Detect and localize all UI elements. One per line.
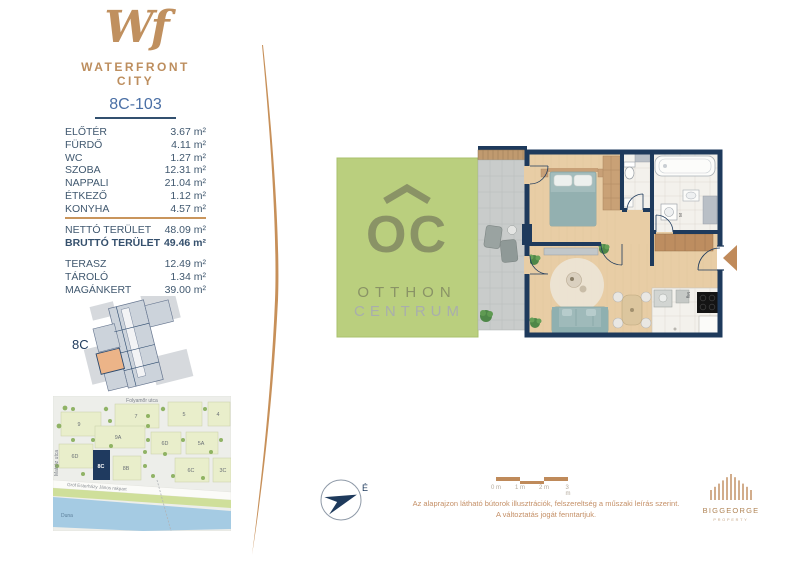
scale-bar: 0 m 1 m 2 m 3 m	[496, 477, 572, 493]
room-row: SZOBA12.31 m²	[65, 164, 206, 177]
floor-plan: OC OTTHON CENTRUM	[335, 146, 737, 346]
svg-text:6C: 6C	[188, 468, 195, 474]
room-area: 21.04 m²	[165, 177, 206, 189]
biggeorge-logo: BIGGEORGE PROPERTY	[692, 466, 770, 526]
lounge-chair	[484, 225, 503, 249]
compass: É	[317, 477, 371, 523]
room-name: FÜRDŐ	[65, 139, 102, 151]
tan-separator	[65, 217, 206, 219]
svg-text:3C: 3C	[220, 468, 227, 474]
shaft	[635, 154, 650, 162]
svg-text:5A: 5A	[198, 441, 205, 447]
extra-name: TERASZ	[65, 258, 106, 270]
room-name: NAPPALI	[65, 177, 109, 189]
scale-tick: 2 m	[539, 485, 549, 491]
pillow	[554, 175, 572, 186]
washer-label: M	[678, 213, 684, 217]
svg-text:6D: 6D	[72, 454, 79, 460]
pillow	[574, 175, 592, 186]
tv-sideboard	[544, 248, 598, 255]
room-area: 4.11 m²	[171, 139, 206, 151]
room-list: ELŐTÉR3.67 m² FÜRDŐ4.11 m² WC1.27 m² SZO…	[65, 126, 206, 216]
extra-row: TERASZ12.49 m²	[65, 258, 206, 271]
dishwasher-label: Mg	[686, 292, 691, 299]
room-row: FÜRDŐ4.11 m²	[65, 139, 206, 152]
north-arrow-icon	[324, 489, 360, 515]
room-name: KONYHA	[65, 203, 109, 215]
total-name: BRUTTÓ TERÜLET	[65, 237, 160, 249]
svg-text:5: 5	[183, 412, 186, 418]
headboard	[548, 168, 598, 172]
stove	[697, 292, 718, 313]
wf-monogram-logo: Wf	[63, 2, 208, 54]
svg-text:OC: OC	[366, 206, 448, 264]
coffee-table	[567, 273, 582, 288]
extra-area: 1.34 m²	[170, 271, 206, 283]
total-area: 48.09 m²	[165, 224, 206, 236]
sofa	[552, 307, 608, 334]
svg-text:6D: 6D	[162, 441, 169, 447]
otthon-centrum-watermark: OC OTTHON CENTRUM	[354, 188, 464, 320]
svg-text:8C: 8C	[98, 464, 105, 470]
developer-subtitle: PROPERTY	[713, 518, 748, 522]
brand-name: WATERFRONT CITY	[63, 60, 208, 88]
total-name: NETTÓ TERÜLET	[65, 224, 151, 236]
entry-cabinet	[655, 234, 713, 251]
room-row: KONYHA4.57 m²	[65, 203, 206, 216]
scale-tick: 3 m	[566, 485, 571, 497]
terrace	[478, 146, 527, 330]
disclaimer-line1: Az alaprajzon látható bútorok illusztrác…	[390, 499, 702, 510]
lounge-chair	[500, 239, 518, 263]
room-row: ÉTKEZŐ1.12 m²	[65, 190, 206, 203]
svg-text:Folyamőr utca: Folyamőr utca	[126, 398, 158, 404]
total-area: 49.46 m²	[164, 237, 206, 249]
toilet	[625, 167, 634, 179]
totals-list: NETTÓ TERÜLET48.09 m² BRUTTÓ TERÜLET49.4…	[65, 224, 206, 250]
entrance-arrow-icon	[723, 245, 737, 271]
extra-name: TÁROLÓ	[65, 271, 108, 283]
curved-divider	[245, 40, 290, 560]
room-area: 12.31 m²	[165, 164, 206, 176]
room-area: 3.67 m²	[170, 126, 206, 138]
extra-area: 12.49 m²	[165, 258, 206, 270]
side-table	[580, 286, 587, 293]
room-row: WC1.27 m²	[65, 152, 206, 165]
unit-title-wrap: 8C-103	[63, 96, 208, 119]
room-row: ELŐTÉR3.67 m²	[65, 126, 206, 139]
extra-area: 39.00 m²	[165, 284, 206, 296]
extra-row: TÁROLÓ1.34 m²	[65, 271, 206, 284]
disclaimer: Az alaprajzon látható bútorok illusztrác…	[390, 499, 702, 520]
room-area: 4.57 m²	[170, 203, 206, 215]
svg-text:OTTHON: OTTHON	[357, 284, 456, 301]
site-map: Folyamőr utca Matróz utca Gróf Esterházy…	[53, 396, 231, 531]
scale-tick: 0 m	[491, 485, 501, 491]
developer-name: BIGGEORGE	[703, 506, 760, 515]
blanket	[550, 192, 596, 226]
fridge	[699, 316, 718, 333]
extra-name: MAGÁNKERT	[65, 284, 131, 296]
room-area: 1.12 m²	[170, 190, 206, 202]
terrace-table	[508, 226, 517, 235]
north-label: É	[362, 483, 368, 493]
svg-text:9: 9	[78, 422, 81, 428]
room-row: NAPPALI21.04 m²	[65, 177, 206, 190]
svg-text:CENTRUM: CENTRUM	[354, 303, 464, 320]
total-row: BRUTTÓ TERÜLET49.46 m²	[65, 237, 206, 250]
extra-row: MAGÁNKERT39.00 m²	[65, 284, 206, 297]
disclaimer-line2: A változtatás jogát fenntartjuk.	[390, 510, 702, 521]
total-row: NETTÓ TERÜLET48.09 m²	[65, 224, 206, 237]
svg-text:4: 4	[217, 412, 220, 418]
level-plan-diagram: 8C	[68, 296, 203, 392]
room-name: WC	[65, 152, 83, 164]
svg-text:Duna: Duna	[61, 513, 73, 519]
extras-list: TERASZ12.49 m² TÁROLÓ1.34 m² MAGÁNKERT39…	[65, 258, 206, 296]
wardrobe	[603, 156, 620, 210]
room-name: ÉTKEZŐ	[65, 190, 107, 202]
scale-tick: 1 m	[515, 485, 525, 491]
datasheet-page: Wf WATERFRONT CITY 8C-103 ELŐTÉR3.67 m² …	[0, 0, 800, 565]
shaft	[703, 196, 717, 224]
svg-text:7: 7	[135, 414, 138, 420]
svg-text:Matróz utca: Matróz utca	[54, 450, 60, 476]
svg-text:8B: 8B	[123, 466, 130, 472]
room-name: ELŐTÉR	[65, 126, 107, 138]
unit-title: 8C-103	[95, 96, 175, 119]
room-area: 1.27 m²	[170, 152, 206, 164]
biggeorge-mark-icon	[711, 474, 751, 500]
room-name: SZOBA	[65, 164, 101, 176]
level-plan-shapes	[74, 296, 195, 392]
svg-text:9A: 9A	[115, 435, 122, 441]
